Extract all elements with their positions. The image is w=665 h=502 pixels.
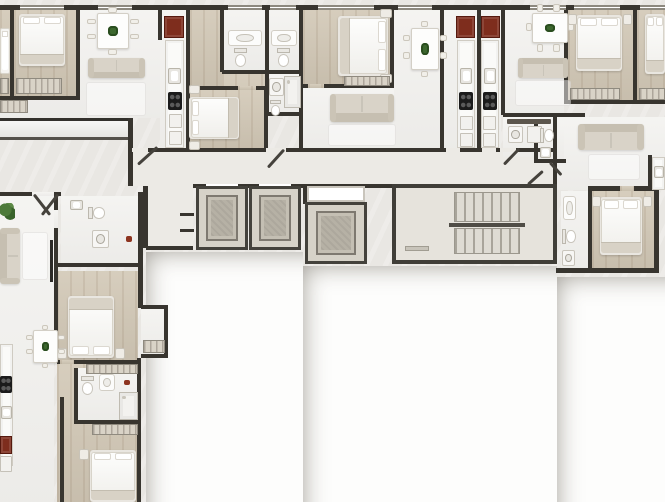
nightstand [79, 449, 89, 460]
sofa-cushion-seam-icon [8, 255, 19, 256]
sofa-cushion-seam-icon [543, 65, 544, 76]
sofa [330, 94, 394, 122]
sink-basin-icon [171, 71, 179, 81]
bed-blanket-icon [20, 54, 63, 64]
chair-icon [87, 19, 96, 24]
chair-icon [403, 52, 411, 58]
stair-flight-icon [454, 228, 520, 255]
washer-drum-icon [272, 82, 280, 92]
chair-icon [421, 71, 429, 77]
cooktop [483, 92, 497, 110]
elevator-car-icon [206, 195, 238, 240]
wall [503, 113, 585, 117]
appliance [483, 133, 496, 147]
sofa [88, 58, 145, 78]
wall [633, 5, 637, 102]
wardrobe [92, 424, 138, 435]
wardrobe [639, 88, 665, 100]
cooktop [0, 376, 12, 393]
chair-icon [42, 325, 49, 330]
sink-basin-icon [656, 169, 662, 176]
wall [501, 5, 505, 115]
rug [328, 124, 396, 146]
nightstand [380, 9, 392, 18]
wall [440, 5, 444, 150]
nightstand [568, 14, 577, 25]
sofa-back-icon [0, 229, 7, 283]
toilet-bowl-icon [566, 230, 576, 244]
plant-centerpiece-icon [421, 43, 429, 54]
wall [76, 8, 80, 98]
stair-flight-icon [454, 192, 520, 222]
door-opening [60, 360, 74, 364]
empty-area [146, 252, 303, 502]
room-elevator-lobby [146, 186, 193, 250]
sofa-back-icon [331, 113, 392, 122]
elevator-car-icon [259, 195, 291, 240]
door-opening [620, 186, 634, 191]
bed-mattress-icon [2, 32, 8, 71]
bed-blanket-icon [69, 298, 112, 310]
sofa-back-icon [579, 124, 642, 132]
sofa-cushion-seam-icon [116, 60, 117, 71]
potted-plant [0, 203, 15, 220]
sofa [0, 228, 20, 284]
sofa-armrest-icon [88, 58, 94, 78]
sink [70, 200, 83, 210]
wall [264, 90, 268, 150]
chair-icon [553, 4, 559, 12]
sofa-cushion-seam-icon [610, 133, 611, 148]
bathroom-vanity [563, 196, 576, 220]
empty-area [303, 266, 557, 502]
wall [10, 8, 14, 98]
toilet-bowl-icon [93, 207, 105, 218]
kitchen-cabinet-red [456, 16, 475, 38]
pillow-icon [44, 17, 61, 25]
chair-icon [130, 34, 139, 39]
rug [515, 80, 571, 106]
elevator-car-icon [316, 211, 355, 255]
chair-icon [526, 23, 532, 31]
shower [119, 392, 138, 420]
cooktop [168, 92, 182, 110]
bed-blanket-icon [91, 490, 134, 500]
tv-panel [50, 240, 53, 282]
appliance [0, 456, 12, 472]
cooktop [459, 92, 473, 110]
toilet-tank-icon [234, 48, 247, 53]
appliance [169, 131, 182, 145]
pillow-icon [192, 101, 200, 116]
toilet-bowl-icon [235, 54, 246, 67]
toilet-bowl-icon [544, 129, 554, 143]
toilet [562, 228, 576, 245]
wardrobe [86, 364, 138, 374]
nightstand [623, 14, 632, 25]
wall [0, 192, 32, 196]
sink [168, 68, 181, 84]
pillow-icon [23, 17, 40, 25]
pillow-icon [94, 453, 111, 461]
wall [57, 263, 141, 267]
sofa-armrest-icon [330, 94, 336, 122]
washer-drum-icon [96, 234, 106, 244]
rug [22, 232, 48, 280]
toilet-tank-icon [270, 100, 281, 104]
washing-machine [92, 230, 109, 248]
chair-icon [130, 19, 139, 24]
kitchen-cabinet-red [481, 16, 500, 38]
wall [74, 368, 78, 420]
nightstand [189, 85, 200, 94]
door-opening [54, 210, 58, 228]
double-bed [90, 450, 136, 502]
double-bed [600, 197, 642, 255]
window [228, 5, 262, 10]
kitchen-cabinet-red [0, 436, 12, 454]
nightstand [592, 196, 601, 207]
sink-basin-icon [277, 34, 290, 43]
window [398, 5, 432, 10]
sink-basin-icon [236, 34, 254, 43]
dining-table [97, 13, 129, 49]
chair-icon [26, 349, 33, 354]
appliance [169, 114, 182, 128]
chair-icon [440, 35, 448, 41]
plant-centerpiece-icon [108, 26, 118, 36]
wardrobe [143, 340, 165, 353]
empty-area [557, 277, 665, 502]
sofa-armrest-icon [578, 124, 585, 150]
bathroom-vanity [228, 30, 262, 46]
shower-drain-icon [122, 396, 126, 400]
window [270, 5, 296, 10]
sofa-cushion-seam-icon [361, 96, 362, 112]
pillow-icon [192, 120, 200, 135]
chair-icon [537, 4, 543, 12]
sofa-armrest-icon [518, 58, 523, 78]
door-opening [482, 148, 496, 152]
sofa [518, 58, 568, 78]
stair-handrail-icon [449, 223, 524, 227]
chair-icon [440, 52, 448, 58]
sofa-back-icon [89, 72, 144, 78]
door-opening [308, 84, 324, 88]
toilet [80, 376, 95, 395]
window [574, 5, 620, 10]
chair-icon [553, 44, 559, 52]
bed-blanket-icon [228, 98, 238, 138]
pillow-icon [115, 453, 132, 461]
double-bed [19, 14, 65, 66]
nightstand [643, 196, 652, 207]
floor-plan [0, 0, 665, 502]
toilet [276, 48, 291, 67]
sink-basin-icon [463, 71, 470, 81]
appliance [460, 116, 473, 130]
sofa-armrest-icon [388, 94, 394, 122]
sofa-back-icon [519, 58, 567, 64]
pillow-icon [604, 200, 619, 209]
pillow-icon [2, 31, 8, 37]
wall [556, 268, 658, 273]
appliance [483, 116, 496, 130]
double-bed [68, 296, 114, 358]
chair-icon [58, 335, 65, 340]
elevator [305, 202, 367, 264]
bed-blanket-icon [601, 242, 641, 254]
pillow-icon [580, 18, 597, 26]
nightstand [189, 141, 200, 150]
toilet-tank-icon [277, 48, 290, 53]
bathroom-accent [124, 380, 130, 385]
bathroom-vanity [271, 30, 297, 46]
plant-centerpiece-icon [545, 24, 556, 32]
plant-centerpiece-icon [42, 342, 49, 351]
door-opening [238, 86, 256, 90]
pillow-icon [72, 346, 89, 355]
sink [460, 68, 472, 84]
sink-basin-icon [542, 149, 548, 155]
pillow-icon [647, 17, 654, 26]
pillow-icon [656, 17, 663, 26]
wardrobe [570, 88, 620, 100]
wall [222, 70, 302, 74]
pillow-icon [378, 21, 386, 43]
toilet-bowl-icon [82, 382, 93, 395]
bed-blanket-icon [577, 58, 620, 69]
wall [180, 213, 194, 216]
wall [60, 397, 64, 502]
washer-drum-icon [565, 254, 572, 263]
elevator [249, 186, 301, 250]
stair-landing-step-icon [405, 246, 429, 252]
bed-blanket-icon [646, 60, 665, 72]
chair-icon [537, 44, 543, 52]
laundry-counter [507, 119, 551, 124]
shower-drain-icon [287, 80, 290, 84]
sink [654, 166, 664, 178]
dining-table [33, 330, 58, 363]
shower [284, 76, 301, 108]
nightstand [115, 348, 125, 359]
wall [564, 100, 665, 104]
wall [180, 229, 194, 232]
toilet-tank-icon [81, 376, 94, 381]
wall [143, 186, 148, 248]
washer-drum-icon [511, 130, 519, 140]
rug [588, 154, 640, 180]
door-opening [446, 148, 460, 152]
wardrobe [0, 78, 9, 94]
sink [540, 147, 551, 158]
elevator-lobby-box [307, 186, 365, 202]
window-wall [0, 118, 128, 140]
sink [1, 406, 12, 419]
pillow-icon [378, 49, 386, 71]
toilet [233, 48, 248, 67]
toilet-tank-icon [88, 207, 93, 219]
bathroom-accent [126, 236, 132, 242]
pillow-icon [601, 18, 618, 26]
double-bed [645, 14, 665, 74]
stairwell [392, 184, 557, 264]
toilet [88, 206, 105, 220]
sofa-armrest-icon [0, 278, 20, 284]
sink [484, 68, 496, 84]
kitchen-cabinet-red [164, 16, 184, 38]
pillow-icon [623, 200, 638, 209]
washing-machine [508, 126, 523, 143]
door-opening [132, 148, 148, 152]
double-bed [576, 15, 622, 71]
rug [86, 82, 146, 116]
chair-icon [421, 21, 429, 27]
window [318, 5, 374, 10]
sink-basin-icon [566, 201, 572, 215]
pillow-icon [93, 346, 110, 355]
chair-icon [403, 35, 411, 41]
wall [146, 246, 193, 250]
appliance [460, 133, 473, 147]
double-bed-partial [0, 28, 10, 74]
washing-machine [269, 78, 284, 96]
toilet [540, 127, 554, 144]
sink-basin-icon [487, 71, 494, 81]
wall [220, 5, 224, 72]
toilet [269, 100, 282, 116]
wardrobe [16, 78, 62, 94]
room-hall-b [190, 8, 222, 90]
sofa [578, 124, 644, 150]
wall [654, 190, 659, 273]
bathroom-vanity [99, 374, 115, 391]
washing-machine [562, 250, 575, 266]
sofa-armrest-icon [0, 228, 20, 234]
wall [128, 118, 133, 186]
toilet-bowl-icon [278, 54, 289, 67]
sofa-armrest-icon [637, 124, 644, 150]
chair-icon [108, 49, 117, 54]
sink-basin-icon [3, 409, 9, 417]
sink-basin-icon [103, 378, 111, 388]
chair-icon [58, 349, 65, 354]
chair-icon [87, 34, 96, 39]
chair-icon [26, 335, 33, 340]
double-bed [338, 16, 388, 76]
dining-table [411, 28, 439, 70]
sofa-armrest-icon [563, 58, 568, 78]
toilet-bowl-icon [271, 105, 281, 116]
room-corridor [128, 150, 557, 186]
window [640, 5, 665, 10]
wardrobe [0, 100, 28, 113]
wall [158, 8, 162, 40]
double-bed [189, 97, 239, 139]
chair-icon [108, 7, 117, 12]
elevator [196, 186, 248, 250]
bed-blanket-icon [340, 18, 350, 74]
window [20, 5, 64, 10]
window [530, 5, 566, 10]
dining-table [532, 13, 568, 43]
wardrobe [344, 76, 390, 86]
wall [369, 184, 392, 188]
sofa-armrest-icon [139, 58, 145, 78]
sink-basin-icon [73, 202, 81, 208]
